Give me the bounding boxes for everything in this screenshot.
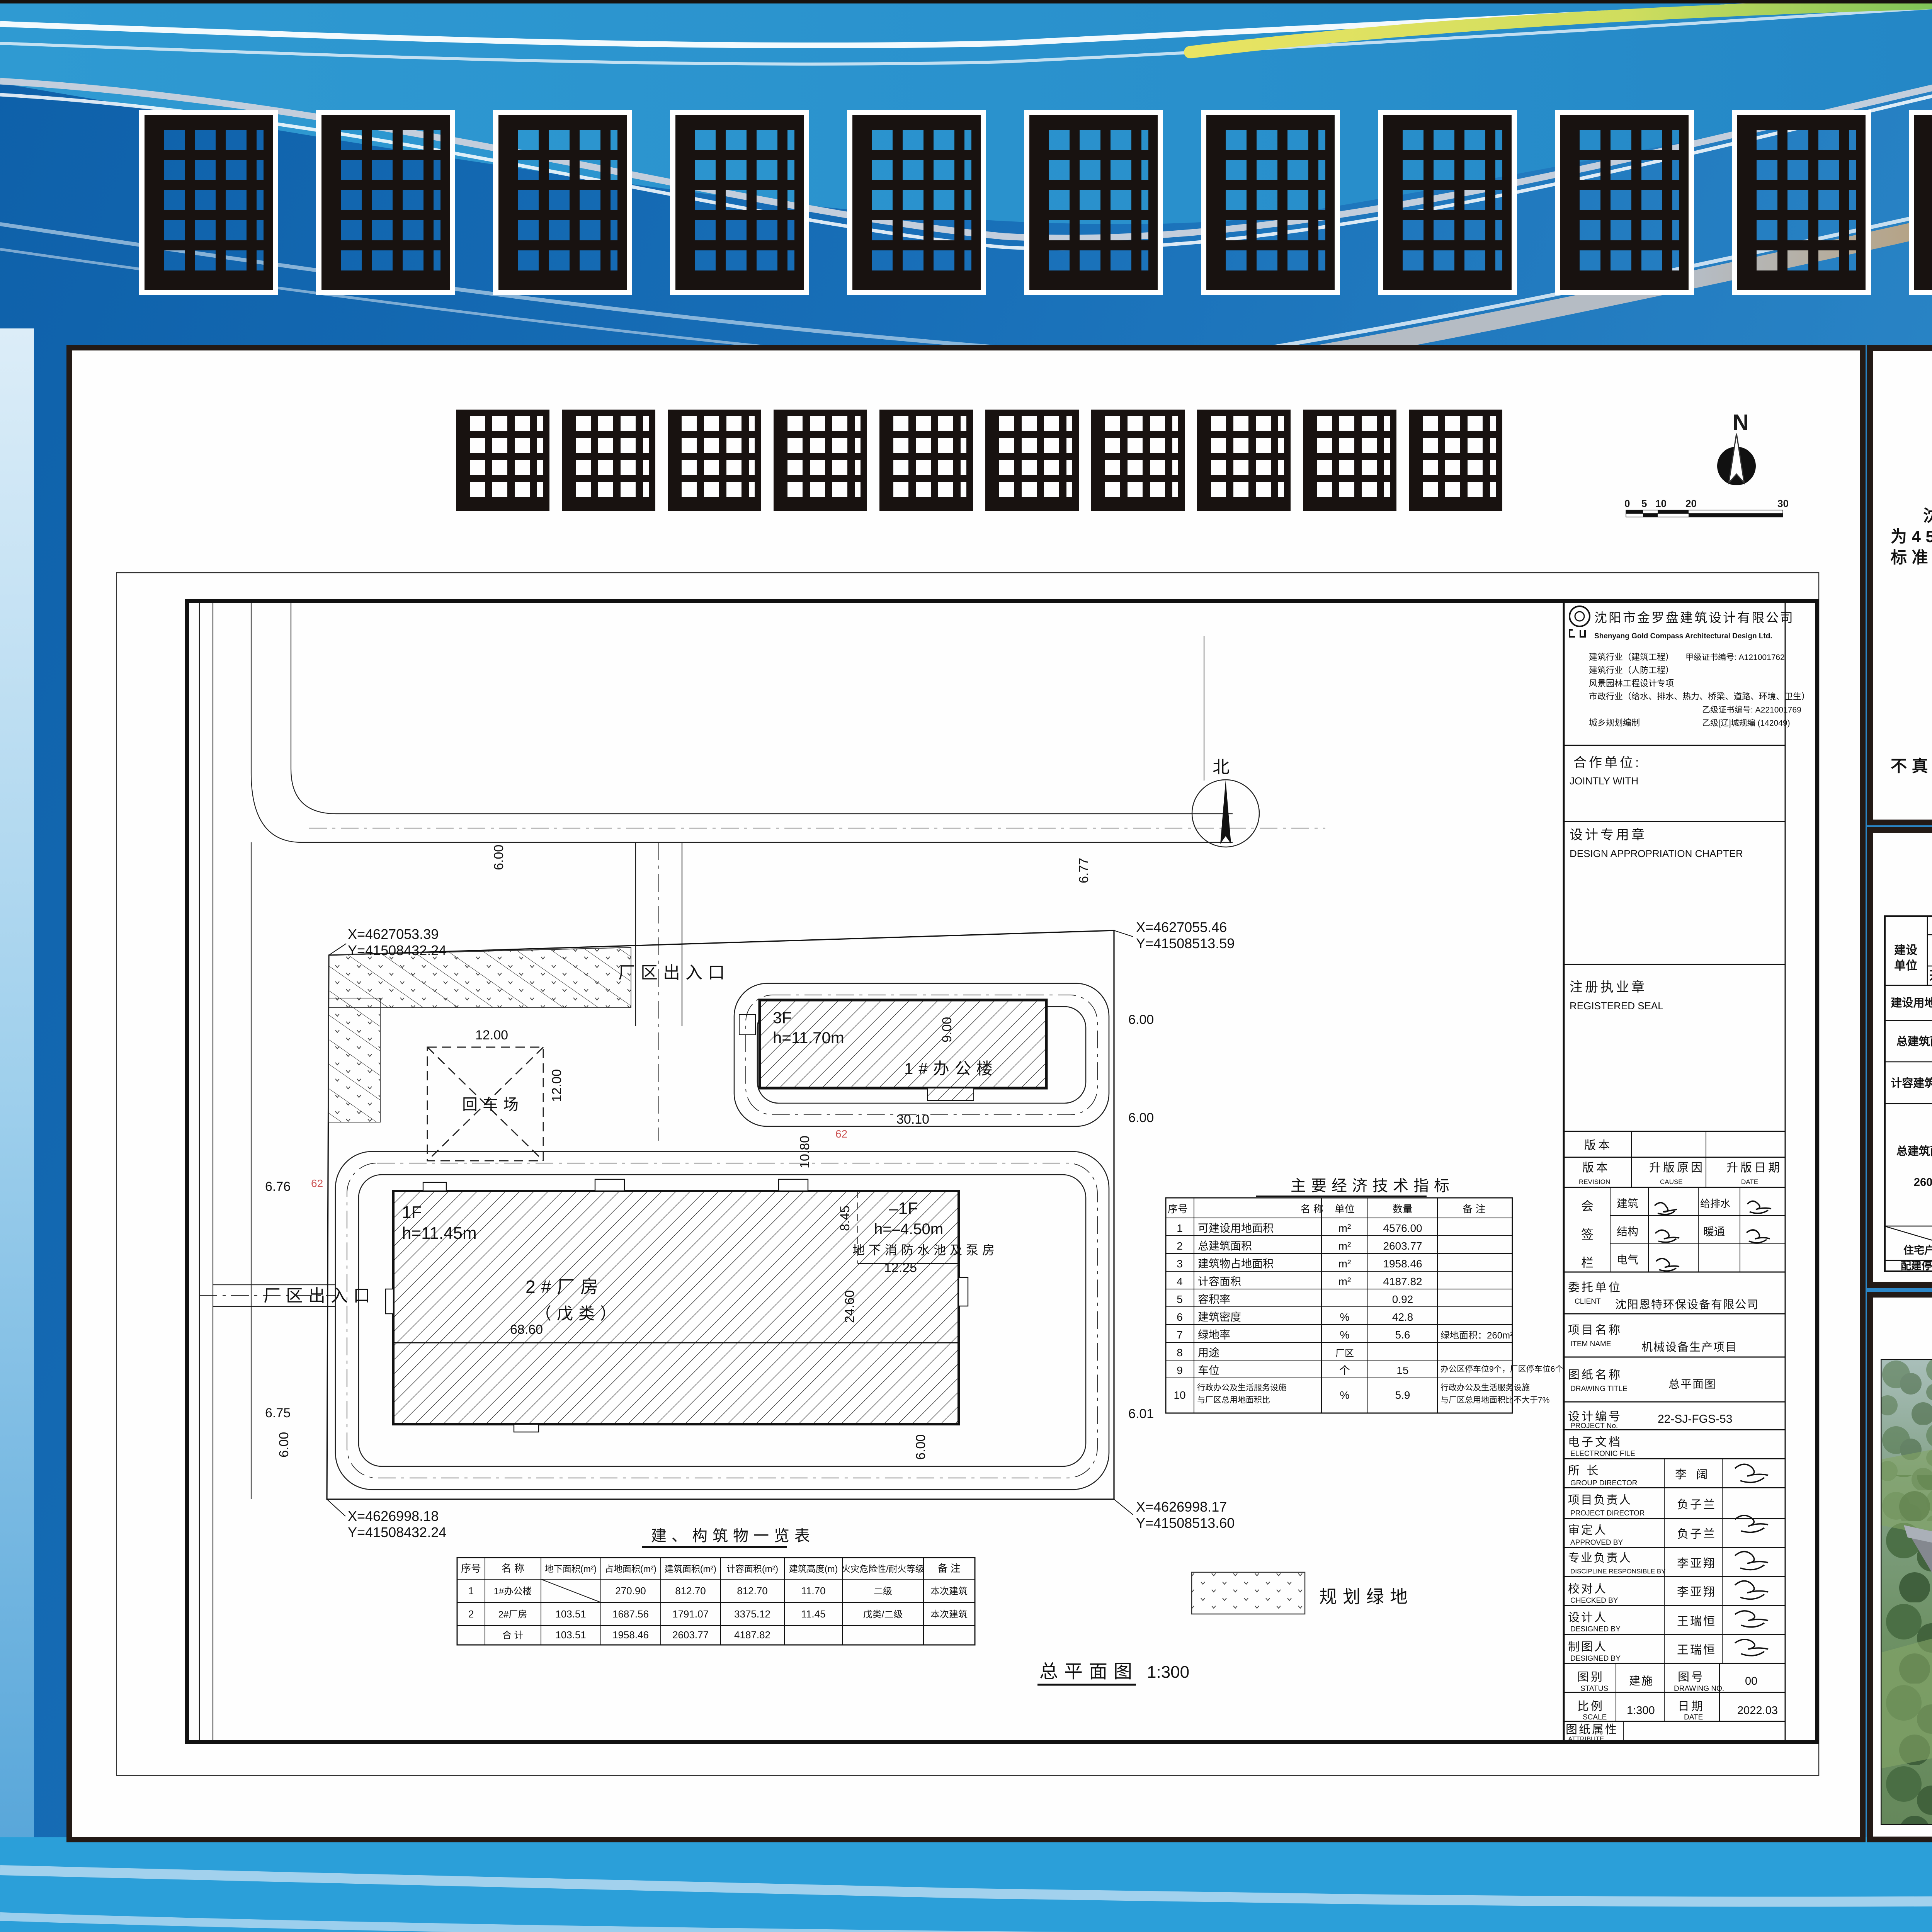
svg-text:电气: 电气 [1617,1254,1638,1266]
svg-text:结构: 结构 [1617,1226,1638,1238]
svg-text:升版日期: 升版日期 [1726,1162,1782,1174]
svg-text:升版原因: 升版原因 [1649,1162,1705,1174]
svg-text:N: N [1733,410,1749,435]
svg-text:建筑: 建筑 [1617,1197,1638,1209]
svg-text:图纸名称: 图纸名称 [1568,1369,1622,1381]
svg-text:3: 3 [1177,1258,1183,1270]
svg-text:6.00: 6.00 [913,1434,928,1460]
svg-text:812.70: 812.70 [675,1585,706,1597]
svg-text:2: 2 [1177,1240,1183,1252]
svg-text:270.90: 270.90 [615,1585,646,1597]
svg-text:5: 5 [1177,1293,1183,1305]
svg-text:乙级证书编号: A221001769: 乙级证书编号: A221001769 [1702,706,1801,714]
svg-text:m²: m² [1338,1222,1351,1234]
svg-text:m²: m² [1338,1276,1351,1287]
svg-text:12.25: 12.25 [884,1260,917,1275]
svg-text:Y=41508432.24: Y=41508432.24 [348,1524,446,1540]
svg-text:电子文档: 电子文档 [1568,1436,1622,1449]
svg-text:厂区出入口: 厂区出入口 [264,1286,376,1305]
svg-text:3375.12: 3375.12 [734,1608,770,1620]
svg-text:DESIGN APPROPRIATION CHAPTER: DESIGN APPROPRIATION CHAPTER [1570,848,1743,859]
svg-text:5.9: 5.9 [1395,1389,1410,1401]
svg-text:栏: 栏 [1581,1256,1594,1270]
svg-text:8.45: 8.45 [838,1206,852,1231]
svg-text:李亚翔: 李亚翔 [1677,1557,1716,1570]
svg-text:30: 30 [1777,498,1789,509]
svg-text:6.00: 6.00 [1128,1012,1154,1027]
svg-text:12.00: 12.00 [475,1028,508,1043]
svg-text:负子兰: 负子兰 [1677,1498,1716,1511]
svg-text:1687.56: 1687.56 [612,1608,649,1620]
svg-text:校对人: 校对人 [1568,1583,1607,1595]
svg-text:ELECTRONIC FILE: ELECTRONIC FILE [1570,1450,1635,1458]
svg-text:1: 1 [468,1585,474,1597]
svg-text:h=–4.50m: h=–4.50m [874,1221,943,1238]
svg-text:总建筑面积（m²）: 总建筑面积（m²） [1896,1035,1932,1048]
svg-text:行政办公及生活服务设施: 行政办公及生活服务设施 [1440,1383,1530,1392]
svg-text:6.77: 6.77 [1077,858,1091,883]
svg-text:6.00: 6.00 [1128,1111,1154,1125]
svg-text:车位: 车位 [1198,1364,1219,1376]
svg-text:单位: 单位 [1335,1203,1355,1215]
svg-text:（戊类）: （戊类） [535,1304,622,1323]
svg-text:建施: 建施 [1629,1675,1654,1687]
svg-text:1958.46: 1958.46 [612,1629,649,1641]
svg-text:–1F: –1F [889,1199,918,1218]
svg-text:0: 0 [1624,498,1630,509]
svg-text:2: 2 [468,1608,474,1620]
svg-text:62: 62 [311,1177,323,1189]
svg-text:Y=41508513.60: Y=41508513.60 [1136,1515,1235,1531]
svg-text:ATTRIBUTE: ATTRIBUTE [1568,1735,1604,1743]
svg-text:建筑行业（建筑工程）: 建筑行业（建筑工程） [1589,652,1674,662]
svg-text:h=11.45m: h=11.45m [402,1224,477,1243]
svg-text:CLIENT: CLIENT [1575,1298,1601,1306]
svg-text:风景园林工程设计专项: 风景园林工程设计专项 [1589,679,1674,688]
svg-text:9.00: 9.00 [940,1017,954,1043]
svg-text:PROJECT No.: PROJECT No. [1570,1422,1618,1430]
svg-text:CHECKED BY: CHECKED BY [1570,1597,1618,1605]
svg-text:1F: 1F [402,1203,422,1222]
svg-text:11.70: 11.70 [801,1585,825,1597]
svg-text:9: 9 [1177,1364,1183,1376]
svg-text:REGISTERED SEAL: REGISTERED SEAL [1570,1000,1663,1012]
svg-text:4187.82: 4187.82 [1383,1276,1422,1287]
svg-text:图号: 图号 [1678,1671,1705,1684]
svg-text:建筑面积(m²): 建筑面积(m²) [665,1564,716,1574]
svg-text:1:300: 1:300 [1627,1704,1655,1717]
svg-text:%: % [1340,1311,1350,1323]
svg-text:暖通: 暖通 [1703,1226,1725,1238]
svg-text:DATE: DATE [1741,1178,1758,1185]
svg-text:备 注: 备 注 [1463,1203,1485,1215]
svg-text:Y=41508432.24: Y=41508432.24 [348,942,446,958]
svg-text:配建停车位（个）: 配建停车位（个） [1901,1260,1932,1272]
svg-text:GROUP DIRECTOR: GROUP DIRECTOR [1570,1479,1638,1487]
svg-text:厂区: 厂区 [1335,1348,1354,1359]
svg-text:厂区出入口: 厂区出入口 [618,963,730,982]
svg-text:DRAWING NO.: DRAWING NO. [1674,1685,1724,1693]
svg-text:0.92: 0.92 [1392,1293,1413,1305]
svg-text:计容面积(m²): 计容面积(m²) [726,1564,778,1574]
svg-text:总建筑面积: 总建筑面积 [1198,1240,1252,1252]
svg-text:6.01: 6.01 [1128,1406,1154,1421]
svg-text:与厂区总用地面积比: 与厂区总用地面积比 [1197,1396,1270,1405]
svg-text:103.51: 103.51 [555,1608,586,1620]
svg-text:DRAWING TITLE: DRAWING TITLE [1570,1385,1628,1393]
svg-text:图别: 图别 [1577,1671,1604,1684]
svg-text:12.00: 12.00 [549,1069,564,1102]
svg-text:用途: 用途 [1198,1347,1219,1359]
svg-text:数量: 数量 [1393,1203,1413,1215]
svg-text:JOINTLY WITH: JOINTLY WITH [1570,775,1638,787]
svg-text:日期: 日期 [1678,1700,1705,1713]
svg-text:序号: 序号 [461,1563,481,1574]
svg-text:10.80: 10.80 [798,1136,812,1168]
svg-text:沈阳市金罗盘建筑设计有限公司: 沈阳市金罗盘建筑设计有限公司 [1594,611,1794,625]
svg-text:总平面图: 总平面图 [1039,1662,1138,1682]
svg-text:容积率: 容积率 [1198,1293,1230,1305]
svg-text:名 称: 名 称 [501,1563,524,1574]
svg-text:DISCIPLINE RESPONSIBLE BY: DISCIPLINE RESPONSIBLE BY [1570,1568,1666,1575]
svg-text:1:300: 1:300 [1147,1663,1189,1682]
svg-text:30.10: 30.10 [896,1112,929,1127]
svg-text:%: % [1340,1329,1350,1341]
svg-text:图纸属性: 图纸属性 [1566,1723,1618,1736]
svg-text:序号: 序号 [1168,1203,1188,1215]
svg-text:北: 北 [1213,758,1235,777]
svg-text:设计编号: 设计编号 [1568,1410,1622,1423]
svg-text:绿地率: 绿地率 [1198,1329,1230,1341]
svg-text:4187.82: 4187.82 [734,1629,770,1641]
svg-text:城乡规划编制: 城乡规划编制 [1589,718,1640,728]
svg-text:甲级证书编号: A121001762: 甲级证书编号: A121001762 [1685,653,1785,662]
svg-text:二级: 二级 [874,1586,892,1597]
svg-text:设计专用章: 设计专用章 [1570,828,1647,842]
svg-text:制图人: 制图人 [1568,1641,1607,1653]
svg-text:设计人: 设计人 [1568,1611,1607,1624]
svg-text:X=4626998.17: X=4626998.17 [1136,1499,1227,1515]
svg-text:计容面积: 计容面积 [1198,1276,1241,1287]
svg-text:42.8: 42.8 [1392,1311,1413,1323]
svg-text:24.60: 24.60 [842,1290,857,1323]
svg-text:DESIGNED BY: DESIGNED BY [1570,1625,1621,1633]
svg-text:建、构筑物一览表: 建、构筑物一览表 [651,1527,815,1544]
svg-text:10: 10 [1173,1389,1185,1401]
svg-text:负子兰: 负子兰 [1677,1528,1716,1541]
svg-text:%: % [1340,1389,1350,1401]
svg-text:5.6: 5.6 [1395,1329,1410,1341]
svg-text:建筑密度: 建筑密度 [1198,1311,1241,1323]
svg-text:68.60: 68.60 [510,1322,543,1337]
svg-text:个: 个 [1339,1364,1350,1376]
svg-text:SCALE: SCALE [1583,1713,1607,1721]
svg-text:项目负责人: 项目负责人 [1568,1494,1632,1507]
svg-text:占地面积(m²): 占地面积(m²) [605,1564,656,1574]
svg-text:1#办公楼: 1#办公楼 [904,1060,998,1078]
svg-text:地下面积(m²): 地下面积(m²) [545,1564,597,1574]
svg-text:00: 00 [1745,1675,1757,1687]
svg-text:6.75: 6.75 [265,1406,291,1420]
svg-text:名 称: 名 称 [1300,1203,1323,1215]
svg-text:本次建筑: 本次建筑 [930,1586,968,1597]
svg-text:开发资质证号: 开发资质证号 [1929,969,1932,982]
svg-text:Shenyang Gold Compass Architec: Shenyang Gold Compass Architectural Desi… [1594,632,1772,640]
svg-text:专业负责人: 专业负责人 [1568,1552,1632,1565]
svg-text:建筑物占地面积: 建筑物占地面积 [1198,1258,1274,1270]
svg-text:X=4627053.39: X=4627053.39 [348,926,439,942]
svg-text:2603.77 m²: 2603.77 m² [1914,1176,1932,1189]
svg-text:3F: 3F [773,1009,792,1027]
svg-text:20: 20 [1685,498,1697,509]
svg-text:CAUSE: CAUSE [1660,1178,1683,1185]
svg-text:会: 会 [1581,1199,1594,1213]
svg-text:6.00: 6.00 [277,1432,291,1458]
svg-text:4: 4 [1177,1276,1183,1287]
svg-text:6: 6 [1177,1311,1183,1323]
svg-text:可建设用地面积: 可建设用地面积 [1198,1222,1274,1234]
svg-text:X=4626998.18: X=4626998.18 [348,1508,439,1524]
svg-text:103.51: 103.51 [555,1629,586,1641]
svg-text:住宅户数: 住宅户数 [1903,1244,1932,1256]
svg-text:乙级[辽]城规编 (142049): 乙级[辽]城规编 (142049) [1702,719,1790,728]
svg-text:建筑行业（人防工程）: 建筑行业（人防工程） [1589,665,1674,675]
svg-text:22-SJ-FGS-53: 22-SJ-FGS-53 [1658,1413,1732,1425]
svg-text:主要经济技术指标: 主要经济技术指标 [1291,1177,1454,1194]
svg-text:本次建筑: 本次建筑 [930,1609,968,1620]
svg-text:版本: 版本 [1584,1139,1612,1152]
svg-text:市政行业（给水、排水、热力、桥梁、道路、环境、卫生）: 市政行业（给水、排水、热力、桥梁、道路、环境、卫生） [1589,692,1810,701]
svg-text:7: 7 [1177,1329,1183,1341]
svg-text:李 阔: 李 阔 [1675,1468,1711,1481]
svg-text:REVISION: REVISION [1579,1178,1610,1185]
svg-text:版本: 版本 [1582,1162,1610,1174]
svg-text:h=11.70m: h=11.70m [773,1029,844,1047]
svg-text:APPROVED BY: APPROVED BY [1570,1539,1623,1547]
svg-text:6.76: 6.76 [265,1179,291,1194]
svg-text:比例: 比例 [1577,1700,1604,1713]
svg-text:DATE: DATE [1684,1713,1703,1721]
svg-text:1#办公楼: 1#办公楼 [494,1586,532,1597]
svg-text:备 注: 备 注 [937,1563,960,1574]
svg-text:m²: m² [1338,1258,1351,1270]
svg-text:总建筑面积（m²）: 总建筑面积（m²） [1896,1145,1932,1158]
svg-text:DESIGNED BY: DESIGNED BY [1570,1655,1621,1663]
svg-text:62: 62 [835,1128,847,1140]
svg-text:项目名称: 项目名称 [1568,1324,1622,1337]
svg-text:6.00: 6.00 [492,845,506,870]
svg-text:建设用地面积（m²）: 建设用地面积（m²） [1891,997,1932,1009]
svg-text:计容建筑面积（m²）: 计容建筑面积（m²） [1891,1077,1932,1090]
svg-text:2#厂房: 2#厂房 [526,1277,604,1297]
svg-text:2#厂房: 2#厂房 [498,1609,527,1620]
svg-text:单位: 单位 [1894,959,1917,972]
svg-text:1958.46: 1958.46 [1383,1258,1422,1270]
svg-text:签: 签 [1581,1228,1594,1242]
svg-text:10: 10 [1655,498,1667,509]
svg-text:审定人: 审定人 [1568,1524,1607,1537]
svg-text:沈阳恩特环保设备有限公司: 沈阳恩特环保设备有限公司 [1615,1298,1759,1311]
svg-text:合 计: 合 计 [502,1630,524,1641]
svg-text:李亚翔: 李亚翔 [1677,1586,1716,1599]
svg-text:给排水: 给排水 [1700,1198,1730,1209]
svg-text:行政办公及生活服务设施: 行政办公及生活服务设施 [1197,1383,1286,1392]
svg-text:地下消防水池及泵房: 地下消防水池及泵房 [852,1243,998,1257]
svg-text:812.70: 812.70 [737,1585,768,1597]
svg-text:机械设备生产项目: 机械设备生产项目 [1641,1341,1737,1354]
svg-text:15: 15 [1396,1364,1408,1376]
svg-text:1: 1 [1177,1222,1183,1234]
svg-text:绿地面积：260m²: 绿地面积：260m² [1440,1330,1513,1341]
svg-text:Y=41508513.59: Y=41508513.59 [1136,935,1235,951]
svg-text:ITEM NAME: ITEM NAME [1570,1340,1611,1348]
svg-text:1791.07: 1791.07 [672,1608,709,1620]
svg-text:规划绿地: 规划绿地 [1319,1587,1413,1607]
svg-text:STATUS: STATUS [1580,1685,1608,1693]
svg-text:与厂区总用地面积比不大于7%: 与厂区总用地面积比不大于7% [1440,1396,1549,1405]
svg-text:建设: 建设 [1894,944,1917,957]
svg-text:戊类/二级: 戊类/二级 [863,1609,903,1620]
svg-text:总平面图: 总平面图 [1668,1378,1716,1391]
svg-text:王瑞恒: 王瑞恒 [1677,1644,1716,1656]
svg-text:回车场: 回车场 [462,1096,524,1113]
svg-text:8: 8 [1177,1347,1183,1359]
svg-text:办公区停车位9个，厂区停车位6个: 办公区停车位9个，厂区停车位6个 [1440,1365,1563,1374]
svg-text:5: 5 [1641,498,1647,509]
svg-text:X=4627055.46: X=4627055.46 [1136,919,1227,935]
svg-text:11.45: 11.45 [801,1608,825,1620]
svg-text:2603.77: 2603.77 [1383,1240,1422,1252]
svg-text:王瑞恒: 王瑞恒 [1677,1615,1716,1628]
svg-text:2603.77: 2603.77 [672,1629,709,1641]
svg-text:注册执业章: 注册执业章 [1570,980,1647,995]
svg-text:所 长: 所 长 [1568,1464,1600,1477]
svg-text:委托单位: 委托单位 [1568,1281,1622,1294]
svg-text:建筑高度(m): 建筑高度(m) [789,1564,838,1574]
svg-text:m²: m² [1338,1240,1351,1252]
svg-text:4576.00: 4576.00 [1383,1222,1422,1234]
svg-text:2022.03: 2022.03 [1737,1704,1778,1717]
svg-text:PROJECT DIRECTOR: PROJECT DIRECTOR [1570,1509,1645,1517]
svg-text:合作单位:: 合作单位: [1573,755,1641,770]
svg-text:火灾危险性/耐火等级: 火灾危险性/耐火等级 [842,1564,924,1574]
